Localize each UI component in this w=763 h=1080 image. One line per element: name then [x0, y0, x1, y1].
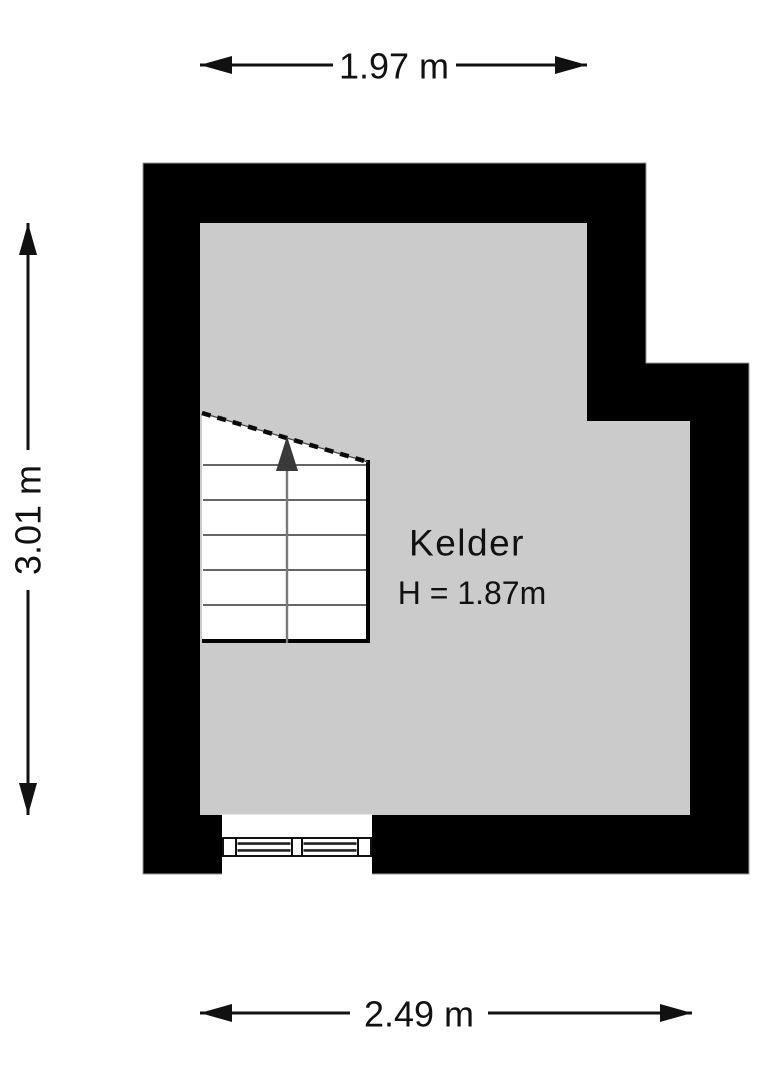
window-frame: [223, 838, 371, 856]
room-name-label: Kelder: [409, 523, 525, 564]
dimension-bottom-label: 2.49 m: [364, 994, 474, 1035]
dimension-top-arrow-left-icon: [200, 56, 232, 74]
room-height-label: H = 1.87m: [398, 575, 547, 611]
dimension-left-label: 3.01 m: [8, 465, 49, 575]
dimension-left-arrow-top-icon: [19, 223, 37, 255]
dimension-bottom-arrow-right-icon: [660, 1004, 692, 1022]
dimension-top-label: 1.97 m: [339, 46, 449, 87]
window-symbol: [222, 815, 372, 876]
dimension-top-arrow-right-icon: [555, 56, 587, 74]
dimension-bottom-arrow-left-icon: [200, 1004, 232, 1022]
floor-plan-canvas: 1.97 m 3.01 m 2.49 m Kelder H = 1.87m: [0, 0, 763, 1080]
floor-plan-page: 1.97 m 3.01 m 2.49 m Kelder H = 1.87m: [0, 0, 763, 1080]
dimension-left-arrow-bottom-icon: [19, 783, 37, 815]
